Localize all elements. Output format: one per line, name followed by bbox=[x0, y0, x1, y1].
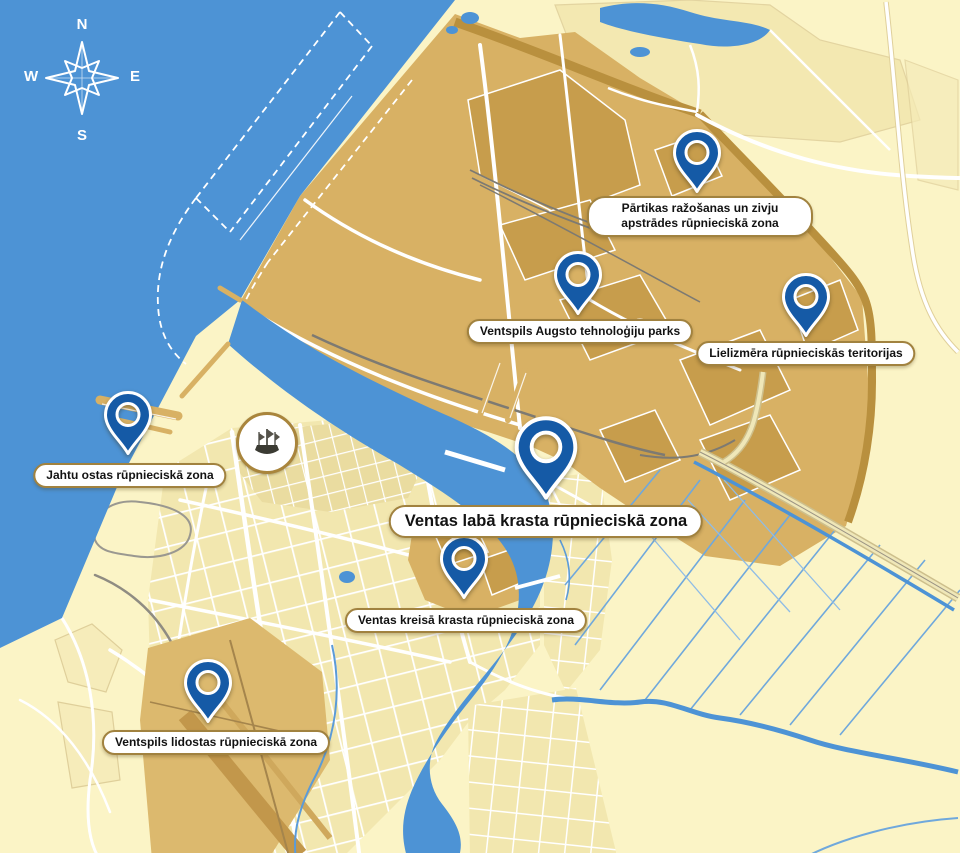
zone-label-airport-industrial: Ventspils lidostas rūpnieciskā zona bbox=[102, 730, 330, 755]
map-pin-high-technology-park[interactable] bbox=[553, 250, 603, 316]
zone-label-high-technology-park: Ventspils Augsto tehnoloģiju parks bbox=[467, 319, 693, 344]
map-overlay: N S W E bbox=[0, 0, 960, 860]
map-pin-large-scale-industrial[interactable] bbox=[781, 272, 831, 338]
zone-label-large-scale-industrial: Lielizmēra rūpnieciskās teritorijas bbox=[696, 341, 915, 366]
zone-label-venta-right-bank: Ventas labā krasta rūpnieciskā zona bbox=[389, 505, 703, 538]
map-pin-yacht-port[interactable] bbox=[103, 390, 153, 456]
zone-label-food-and-fish-processing: Pārtikas ražošanas un zivju apstrādes rū… bbox=[587, 196, 813, 237]
map-pin-airport-industrial[interactable] bbox=[183, 658, 233, 724]
map-pin-venta-left-bank[interactable] bbox=[439, 534, 489, 600]
ship-emblem bbox=[236, 412, 298, 474]
compass-star-icon bbox=[24, 30, 140, 130]
ventspils-industrial-zones-map: N S W E bbox=[0, 0, 960, 860]
map-pin-food-and-fish-processing[interactable] bbox=[672, 128, 722, 194]
zone-label-yacht-port: Jahtu ostas rūpnieciskā zona bbox=[33, 463, 226, 488]
compass-rose: N S W E bbox=[24, 16, 140, 144]
sailing-ship-icon bbox=[247, 423, 287, 463]
map-pin-venta-right-bank[interactable] bbox=[513, 415, 579, 501]
zone-label-venta-left-bank: Ventas kreisā krasta rūpnieciskā zona bbox=[345, 608, 587, 633]
